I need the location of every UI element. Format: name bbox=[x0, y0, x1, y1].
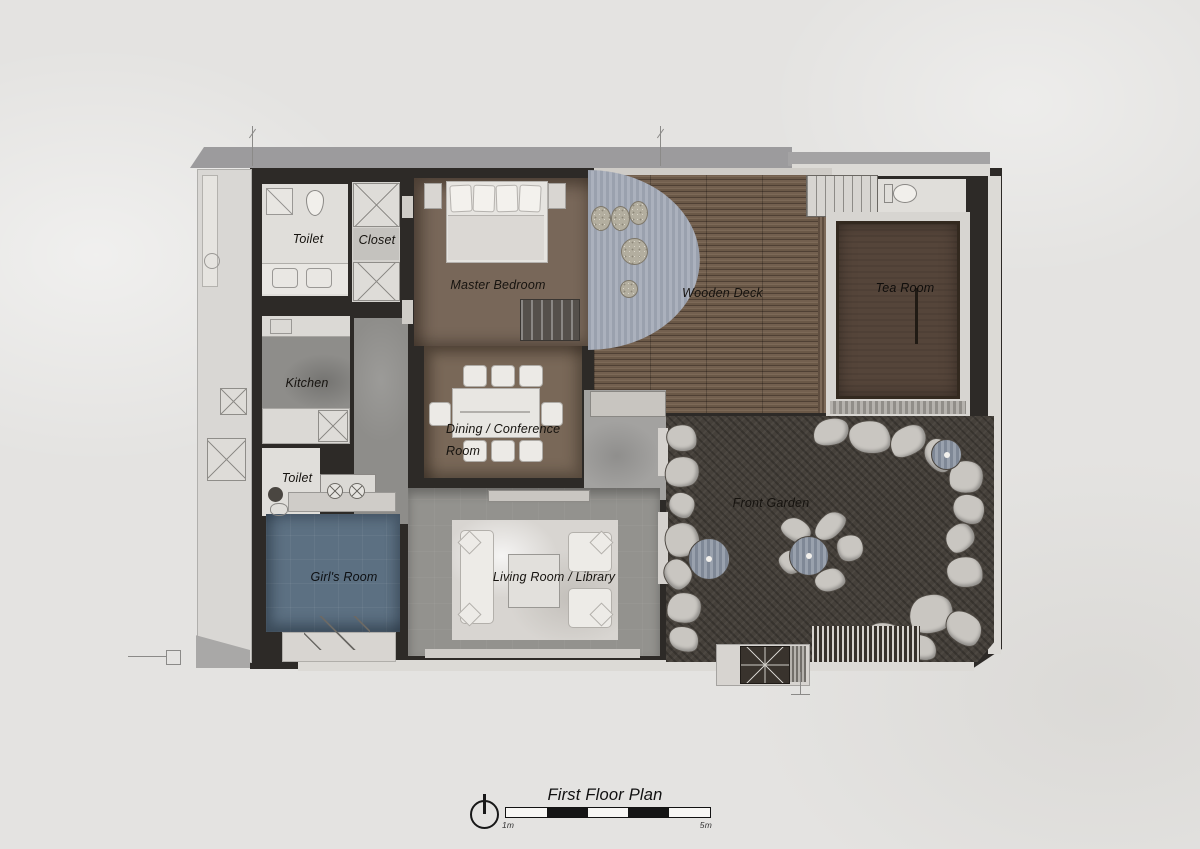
genkan-step bbox=[590, 391, 666, 417]
label-living-room: Living Room / Library bbox=[469, 570, 639, 585]
pillow bbox=[496, 185, 519, 213]
label-wooden-deck: Wooden Deck bbox=[650, 286, 795, 301]
stairs-upper-icon bbox=[806, 175, 878, 217]
label-closet: Closet bbox=[350, 233, 404, 248]
fence-icon bbox=[812, 626, 920, 662]
side-yard-basin bbox=[204, 253, 220, 269]
girls-closet-strip bbox=[288, 492, 396, 512]
roof-shadow-band bbox=[190, 147, 792, 168]
tree-icon bbox=[931, 439, 962, 470]
scale-segment bbox=[628, 808, 669, 817]
pillow bbox=[449, 184, 472, 212]
sink-icon bbox=[272, 268, 298, 288]
nightstand bbox=[424, 183, 442, 209]
closet-box-icon bbox=[353, 183, 400, 227]
scale-label-min: 1m bbox=[502, 820, 526, 830]
label-master-bedroom: Master Bedroom bbox=[428, 278, 568, 293]
floor-plan-sheet: Toilet Closet Master Bedroom Wooden Deck… bbox=[0, 0, 1200, 849]
label-dining: Dining / Conference Room bbox=[446, 419, 574, 463]
chair bbox=[491, 365, 515, 387]
ref-marker-line bbox=[800, 672, 801, 694]
toilet-icon bbox=[893, 184, 917, 203]
basin-icon bbox=[268, 487, 283, 502]
futon-marks bbox=[304, 616, 370, 650]
toilet-icon bbox=[270, 503, 288, 516]
shower-stall-icon bbox=[318, 410, 348, 442]
sink-icon bbox=[306, 268, 332, 288]
gate-slats bbox=[790, 646, 806, 682]
room-tea-room bbox=[836, 221, 960, 399]
gate-star-icon bbox=[740, 646, 790, 684]
tea-room-engawa bbox=[830, 401, 966, 414]
nightstand bbox=[548, 183, 566, 209]
toilet-tank bbox=[884, 184, 893, 203]
door-opening bbox=[402, 300, 413, 324]
label-tea-room: Tea Room bbox=[848, 281, 962, 296]
scale-segment bbox=[588, 808, 629, 817]
door-opening bbox=[402, 196, 413, 218]
scale-segment bbox=[506, 808, 547, 817]
scale-segment bbox=[547, 808, 588, 817]
side-yard-counter bbox=[202, 175, 218, 287]
side-yard-unit-icon bbox=[220, 388, 247, 415]
south-window-strip bbox=[425, 649, 640, 658]
label-front-garden: Front Garden bbox=[706, 496, 836, 511]
label-kitchen: Kitchen bbox=[272, 376, 342, 391]
shrub-icon bbox=[620, 280, 638, 298]
scale-segment bbox=[669, 808, 710, 817]
deck-top-edge bbox=[594, 168, 832, 175]
shrub-icon bbox=[621, 238, 648, 265]
ref-marker-line bbox=[128, 656, 166, 657]
label-toilet-lower: Toilet bbox=[266, 471, 328, 486]
closet-box-icon bbox=[353, 262, 400, 301]
burner-icon bbox=[327, 483, 343, 499]
tea-room-post bbox=[915, 288, 918, 344]
stairs-lower-icon bbox=[520, 299, 580, 341]
tree-icon bbox=[789, 536, 829, 576]
north-arrow-needle bbox=[483, 794, 486, 814]
pillow bbox=[518, 184, 541, 212]
shrub-icon bbox=[629, 201, 648, 225]
bed-blanket bbox=[448, 215, 544, 260]
scale-label-max: 5m bbox=[688, 820, 712, 830]
chair bbox=[463, 365, 487, 387]
label-girls-room: Girl's Room bbox=[284, 570, 404, 585]
pillow bbox=[473, 185, 496, 213]
side-yard-unit2-icon bbox=[207, 438, 246, 481]
shower-icon bbox=[266, 188, 293, 215]
shrub-icon bbox=[611, 206, 630, 231]
chair bbox=[519, 365, 543, 387]
bookshelf-strip bbox=[488, 490, 590, 502]
dining-table-seam bbox=[460, 411, 530, 413]
drawing-title: First Floor Plan bbox=[510, 786, 700, 806]
label-toilet-upper: Toilet bbox=[278, 232, 338, 247]
deck-garden-divider bbox=[666, 413, 832, 416]
scale-bar bbox=[505, 807, 711, 818]
shrub-icon bbox=[591, 206, 611, 231]
tree-icon bbox=[688, 538, 730, 580]
ref-marker-box bbox=[166, 650, 181, 665]
ref-marker-line bbox=[791, 694, 810, 695]
burner-icon bbox=[349, 483, 365, 499]
kitchen-sink-icon bbox=[270, 319, 292, 334]
